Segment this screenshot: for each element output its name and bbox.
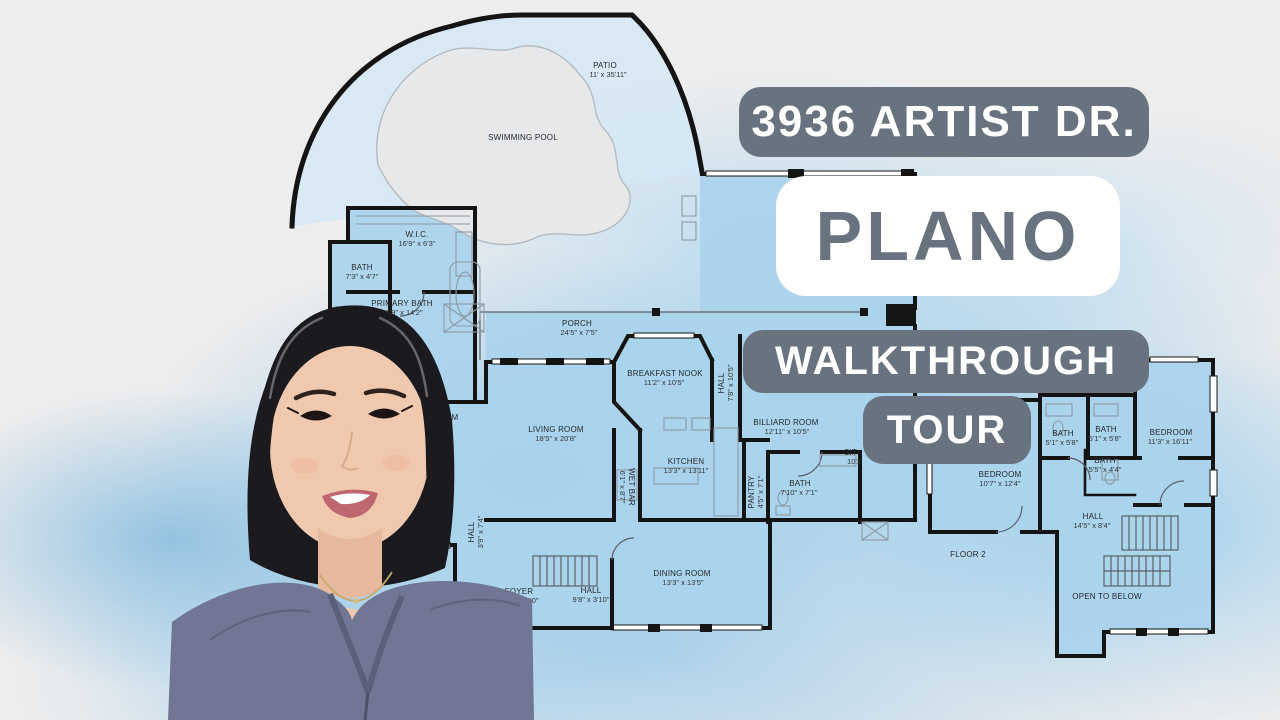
tour-text: TOUR — [887, 408, 1008, 453]
video-thumbnail: PATIO 11' x 35'11" SWIMMING POOL W.I.C. … — [0, 0, 1280, 720]
address-text: 3936 ARTIST DR. — [751, 97, 1136, 147]
address-badge: 3936 ARTIST DR. — [739, 87, 1149, 157]
necklace-pendant — [353, 598, 358, 603]
walkthrough-badge: WALKTHROUGH — [743, 330, 1149, 393]
city-text: PLANO — [816, 196, 1081, 276]
city-badge: PLANO — [776, 176, 1120, 296]
walkthrough-text: WALKTHROUGH — [775, 339, 1117, 384]
tour-badge: TOUR — [863, 396, 1031, 464]
